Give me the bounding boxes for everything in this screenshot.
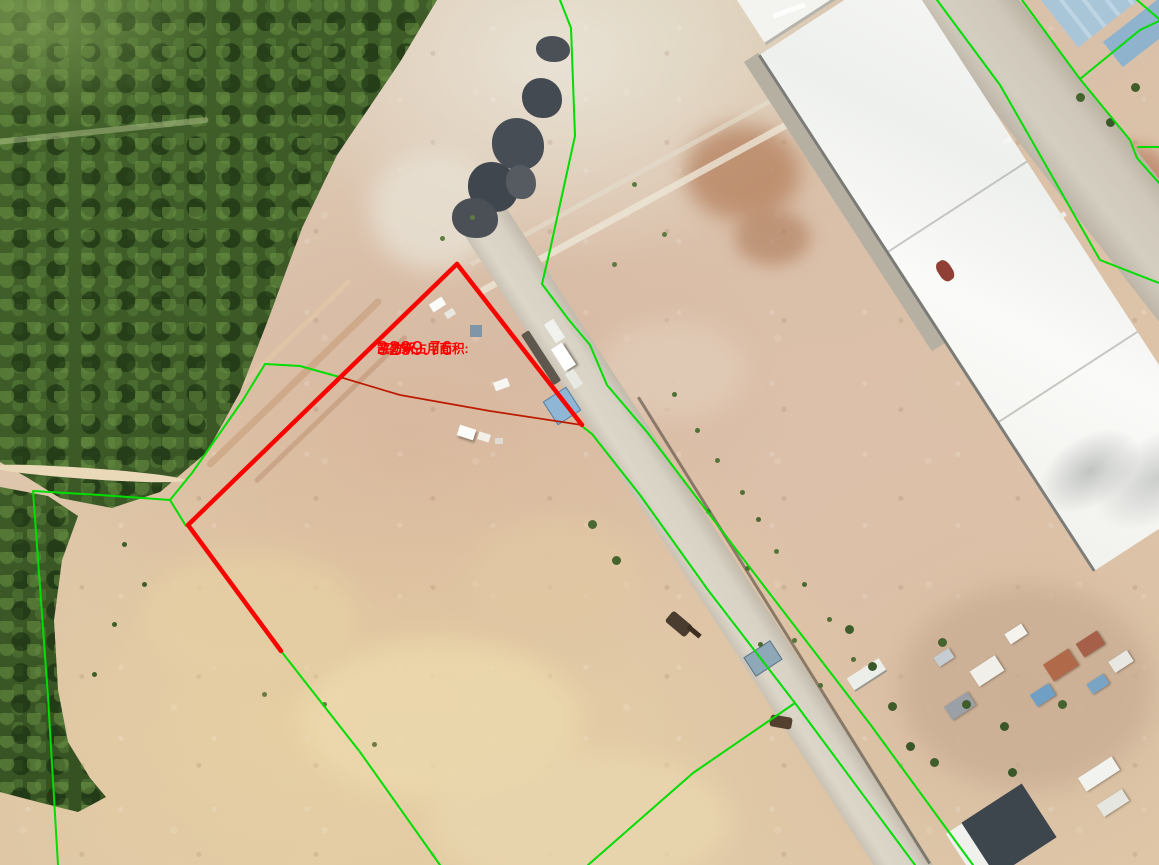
red-edge-east — [457, 264, 582, 425]
green-parcel-boundaries — [33, 0, 1159, 865]
green-boundary-west-leg — [33, 491, 170, 865]
green-boundary-bottom-leg — [281, 651, 440, 865]
label-area-unit: 平方米 — [377, 338, 415, 357]
green-topright-corner — [1137, 0, 1159, 19]
red-highlight-outline — [188, 264, 582, 651]
green-boundary-road-east — [542, 0, 973, 865]
green-branch-southwest — [588, 703, 795, 865]
aerial-map-view: 凯勒斯占用面积: 3299.76 平方米 — [0, 0, 1159, 865]
overlay-svg — [0, 0, 1159, 865]
green-boundary-road-west — [583, 427, 915, 865]
green-boundary-forest-arc — [170, 364, 343, 526]
red-parcel-thin-boundary — [343, 378, 582, 425]
green-topright-descend — [1022, 0, 1159, 183]
green-topright-branch — [1080, 21, 1159, 79]
red-edge-west — [188, 264, 457, 651]
